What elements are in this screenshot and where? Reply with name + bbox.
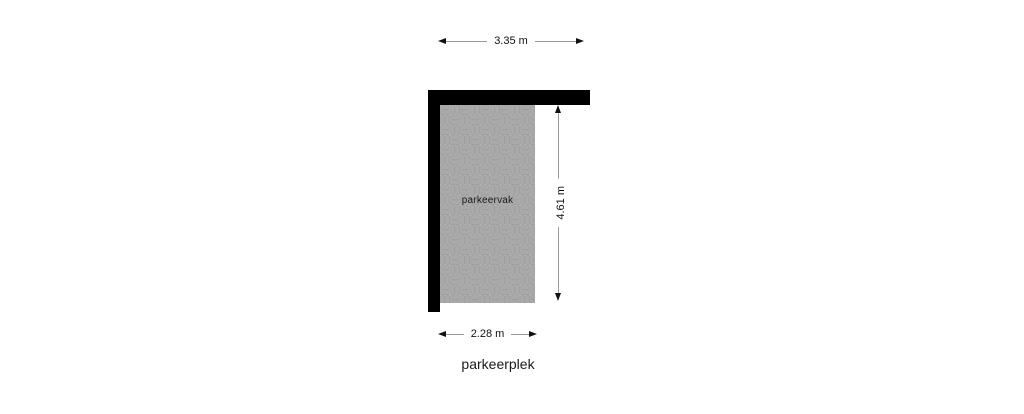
dimension-line [535,41,576,42]
arrow-right-icon [529,331,537,337]
dimension-label-right: 4.61 m [554,179,568,227]
wall-left [428,90,440,312]
floorplan-canvas: 3.35 m [0,0,1024,414]
parking-bay: parkeervak [440,105,535,303]
wall-top [428,90,590,105]
dimension-right: 4.61 m [550,105,566,301]
dimension-line [446,41,487,42]
dimension-line [558,227,559,293]
dimension-line [511,334,529,335]
arrow-left-icon [438,38,446,44]
dimension-line [558,113,559,179]
arrow-up-icon [555,105,561,113]
page-title: parkeerplek [428,356,568,372]
basket-weave-pattern [440,105,535,303]
dimension-label-bottom: 2.28 m [464,327,512,341]
dimension-top: 3.35 m [438,33,584,49]
dimension-bottom: 2.28 m [438,326,537,342]
dimension-line [446,334,464,335]
arrow-left-icon [438,331,446,337]
arrow-down-icon [555,293,561,301]
arrow-right-icon [576,38,584,44]
dimension-label-top: 3.35 m [487,34,535,48]
